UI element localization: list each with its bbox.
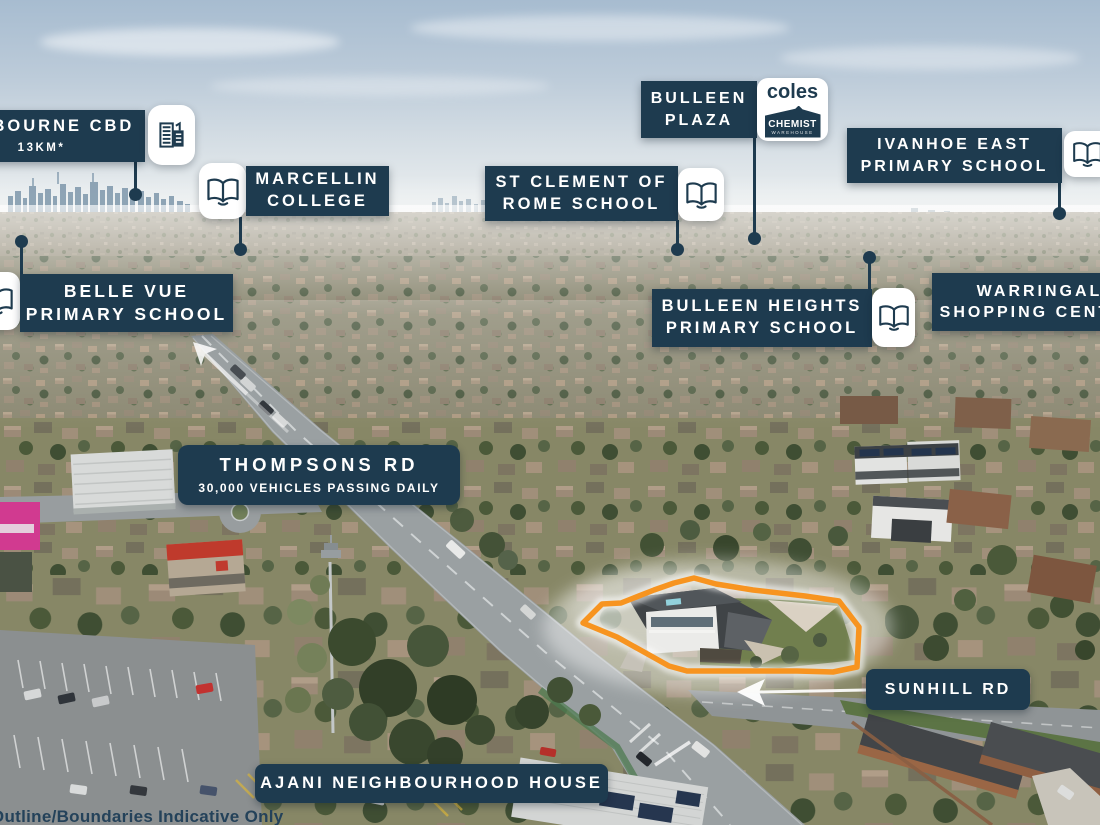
ajani-title: AJANI NEIGHBOURHOOD HOUSE	[260, 773, 603, 795]
leader-dot-bulleen-heights	[863, 251, 876, 264]
marcellin-line1: MARCELLIN	[255, 169, 379, 191]
callout-belle-vue: BELLE VUE PRIMARY SCHOOL	[20, 274, 233, 332]
leader-dot-st-clement	[671, 243, 684, 256]
belle-vue-line1: BELLE VUE	[64, 280, 189, 303]
callout-bulleen-plaza: BULLEEN PLAZA	[641, 81, 757, 138]
callout-warringal: WARRINGAL SHOPPING CENTRE	[932, 273, 1100, 331]
bulleen-heights-line1: BULLEEN HEIGHTS	[662, 296, 863, 318]
highlighted-property	[543, 559, 893, 695]
open-book-icon	[0, 272, 20, 330]
st-clement-line1: ST CLEMENT OF	[496, 172, 668, 194]
bulleen-plaza-line1: BULLEEN	[651, 88, 748, 109]
leader-dot-melbourne-cbd	[129, 188, 142, 201]
melbourne-cbd-distance: 13KM*	[18, 141, 66, 156]
marcellin-line2: COLLEGE	[267, 191, 368, 213]
city-buildings-icon	[148, 105, 195, 165]
chemist-warehouse-line2: WAREHOUSE	[772, 130, 814, 135]
sunhill-rd-title: SUNHILL RD	[885, 679, 1012, 700]
warringal-line2: SHOPPING CENTRE	[940, 302, 1100, 323]
thompsons-rd-title: THOMPSONS RD	[219, 453, 418, 477]
callout-marcellin-college: MARCELLIN COLLEGE	[246, 166, 389, 216]
boundaries-disclaimer: *Outline/Boundaries Indicative Only	[0, 807, 284, 825]
leader-dot-ivanhoe-east	[1053, 207, 1066, 220]
leader-dot-bulleen-plaza	[748, 232, 761, 245]
open-book-icon	[872, 288, 915, 347]
callout-ajani: AJANI NEIGHBOURHOOD HOUSE	[255, 764, 608, 803]
callout-ivanhoe-east: IVANHOE EAST PRIMARY SCHOOL	[847, 128, 1062, 183]
ivanhoe-east-line2: PRIMARY SCHOOL	[861, 156, 1049, 177]
st-clement-line2: ROME SCHOOL	[503, 194, 661, 216]
open-book-icon	[199, 163, 246, 219]
callout-bulleen-heights: BULLEEN HEIGHTS PRIMARY SCHOOL	[652, 289, 872, 347]
callout-st-clement: ST CLEMENT OF ROME SCHOOL	[485, 166, 678, 221]
warringal-line1: WARRINGAL	[977, 281, 1100, 302]
callout-melbourne-cbd: MELBOURNE CBD 13KM*	[0, 110, 145, 162]
melbourne-cbd-title: MELBOURNE CBD	[0, 116, 134, 138]
ivanhoe-east-line1: IVANHOE EAST	[877, 134, 1032, 155]
chemist-warehouse-logo: CHEMIST WAREHOUSE	[765, 106, 821, 138]
leader-dot-marcellin	[234, 243, 247, 256]
open-book-icon	[1064, 131, 1100, 177]
open-book-icon	[678, 168, 724, 221]
bulleen-plaza-logos: coles CHEMIST WAREHOUSE	[757, 78, 828, 141]
chemist-warehouse-line1: CHEMIST	[768, 119, 817, 130]
leader-dot-belle-vue	[15, 235, 28, 248]
leader-line-bulleen-plaza	[753, 137, 756, 239]
aerial-site-map: MELBOURNE CBD 13KM* MARCELLIN COLLEGE BU…	[0, 0, 1100, 825]
bulleen-plaza-line2: PLAZA	[665, 110, 733, 131]
callout-thompsons-rd: THOMPSONS RD 30,000 VEHICLES PASSING DAI…	[178, 445, 460, 505]
bulleen-heights-line2: PRIMARY SCHOOL	[666, 318, 858, 340]
callout-sunhill-rd: SUNHILL RD	[866, 669, 1030, 710]
belle-vue-line2: PRIMARY SCHOOL	[26, 303, 227, 326]
thompsons-rd-subtitle: 30,000 VEHICLES PASSING DAILY	[198, 481, 439, 497]
coles-logo: coles	[767, 82, 818, 102]
